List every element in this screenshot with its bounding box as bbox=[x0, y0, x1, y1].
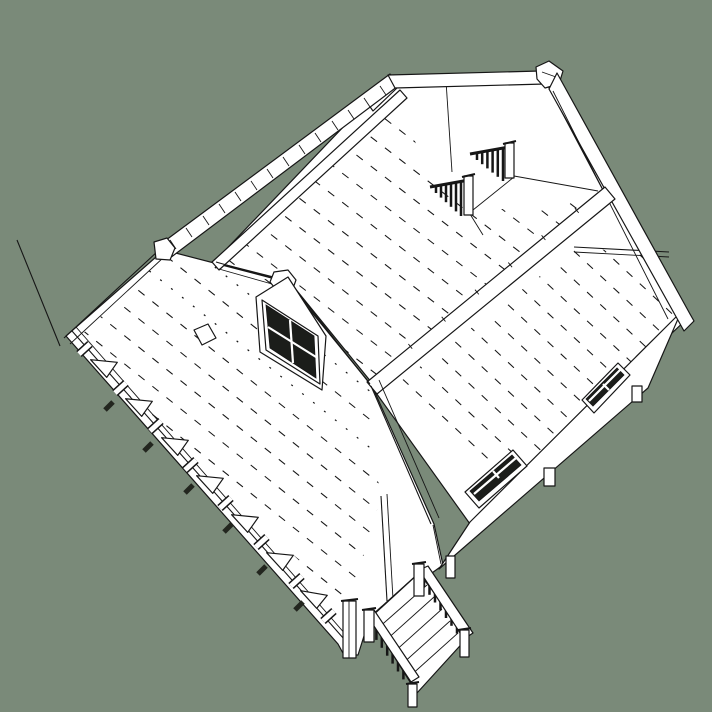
newel-post bbox=[464, 176, 473, 215]
newel-post bbox=[505, 143, 514, 178]
railing-end-post bbox=[408, 684, 417, 707]
newel-post bbox=[364, 610, 374, 642]
newel-post bbox=[414, 564, 424, 596]
railing-end-post bbox=[460, 630, 469, 657]
house-model-drawing[interactable] bbox=[0, 0, 712, 712]
3d-viewport[interactable] bbox=[0, 0, 712, 712]
porch-corner-post bbox=[343, 601, 356, 658]
